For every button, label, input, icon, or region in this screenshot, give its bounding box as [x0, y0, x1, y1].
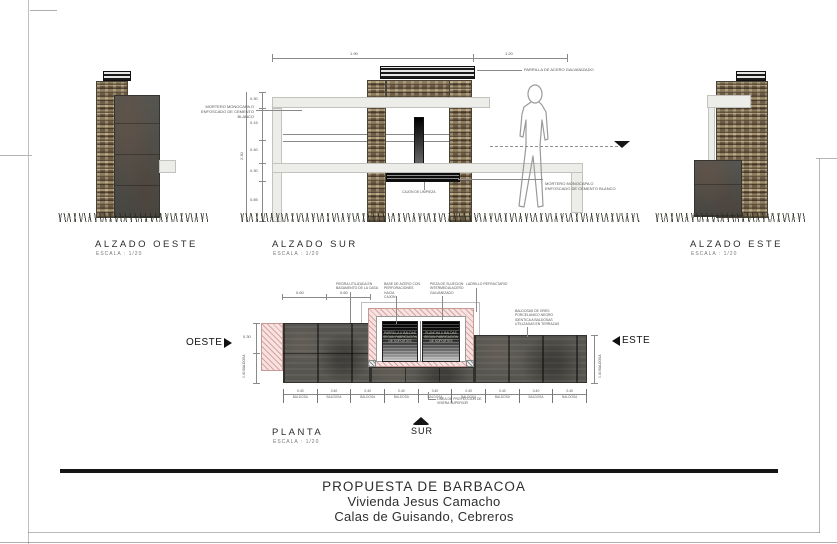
- planta-grill-right: PLANCHA U BALDAS SEGUN FABRICACION DE SO…: [422, 321, 460, 362]
- planta-right-dim-line: [594, 335, 595, 383]
- title-block-rule: [60, 469, 778, 473]
- sur-dim-tick: [259, 163, 266, 164]
- plan-dim-segment: 0.40BALDOSA: [519, 389, 553, 403]
- sur-top-dim-value: 1.90: [350, 51, 358, 56]
- project-title: PROPUESTA DE BARBACOA: [28, 479, 820, 494]
- human-figure: [510, 84, 560, 212]
- sur-dim-value: 0.30: [250, 96, 258, 101]
- sur-level-dashed-line: [490, 146, 618, 147]
- compass-este-label: ESTE: [622, 335, 650, 346]
- planta-tile-joint: [542, 335, 543, 383]
- planta-left-dim-tick: [253, 323, 260, 324]
- planta-note-ladrillo: LADRILLO REFRACTARIO: [466, 282, 510, 286]
- planta-top-dim-tick: [370, 294, 371, 300]
- planta-note-leader: [396, 296, 397, 324]
- oeste-grass: [58, 213, 208, 222]
- sur-dim-tick: [259, 108, 266, 109]
- sur-top-dim-tick: [272, 54, 273, 62]
- planta-left-dim-tick: [253, 353, 260, 354]
- sur-note-leader: [256, 110, 302, 111]
- frame-right-line: [819, 158, 820, 533]
- sur-grill-plate: [414, 117, 424, 164]
- oeste-view-scale: ESCALA : 1/20: [96, 251, 142, 257]
- sur-note-mortero-left: MORTERO MONOCAPA O ENFOSCADO DE CEMENTO …: [190, 104, 254, 120]
- oeste-shelf: [159, 160, 176, 173]
- sur-cleaning-drawer: [386, 172, 460, 182]
- grill-right-label: PLANCHA U BALDAS SEGUN FABRICACION DE SO…: [423, 331, 459, 343]
- planta-note-leader: [476, 288, 477, 312]
- planta-corner-hatch: [368, 360, 376, 367]
- image-bottom-edge: [0, 542, 837, 543]
- oeste-view-title: ALZADO OESTE: [95, 239, 198, 250]
- planta-view-scale: ESCALA : 1/20: [273, 439, 319, 445]
- sur-dim-tick: [259, 181, 266, 182]
- sur-rail-line: [283, 134, 367, 135]
- frame-left-cutmark: [0, 155, 32, 156]
- planta-note-baldosas: BALDOSAS DE GRES PORCELANICO NEGRO IDENT…: [515, 309, 567, 327]
- planta-note-leader: [442, 296, 443, 320]
- planta-tile-joint: [283, 353, 370, 354]
- planta-top-dim-tick: [282, 294, 283, 300]
- project-client: Vivienda Jesus Camacho: [28, 494, 820, 509]
- sur-view-scale: ESCALA : 1/20: [273, 251, 319, 257]
- planta-grill-divider: [420, 321, 421, 362]
- planta-left-dim-rotated: 0.40 BALDOSA: [242, 354, 246, 378]
- sur-view-title: ALZADO SUR: [272, 239, 358, 250]
- oeste-chimney-cap: [103, 71, 131, 81]
- sur-dim-value: 0.15: [250, 120, 258, 125]
- sur-grass: [240, 213, 640, 222]
- arrow-right-icon: [224, 338, 232, 348]
- sur-top-slab: [272, 97, 490, 108]
- sur-note-leader: [477, 70, 522, 71]
- sur-top-dim-tick: [473, 54, 474, 62]
- level-marker-icon: [614, 141, 630, 148]
- planta-note-leader: [428, 399, 436, 400]
- grill-left-label: PARRILLA U BALDAS SEGUN FABRICACION DE S…: [383, 331, 417, 343]
- este-view-title: ALZADO ESTE: [690, 239, 783, 250]
- planta-grill-left: PARRILLA U BALDAS SEGUN FABRICACION DE S…: [382, 321, 418, 362]
- planta-west-wall: [261, 323, 283, 371]
- sur-total-dim-value: 2.30: [239, 152, 244, 160]
- sur-top-dim-line: [272, 58, 568, 59]
- sur-top-dim-value: 1.20: [505, 51, 513, 56]
- planta-note-leader: [428, 392, 429, 400]
- plan-dim-segment: 0.40BALDOSA: [384, 389, 418, 403]
- planta-left-dim-value: 0.30: [243, 334, 251, 339]
- plan-dim-segment: 0.40BALDOSA: [283, 389, 317, 403]
- sur-note-leader: [458, 179, 543, 180]
- sur-rail-line: [283, 141, 367, 142]
- plan-dim-segment: 0.40BALDOSA: [350, 389, 384, 403]
- plan-dim-segment: 0.40BALDOSA: [317, 389, 351, 403]
- sur-dim-value: 0.85: [250, 197, 258, 202]
- planta-note-piedra: PIEDRA UTILIZADA EN BASAMENTO DE LA CASA: [336, 282, 380, 291]
- sur-note-leader: [424, 182, 425, 190]
- sur-dim-tick: [259, 140, 266, 141]
- planta-right-dim-tick: [591, 383, 598, 384]
- sur-dim-tick: [259, 92, 266, 93]
- planta-tile-joint: [576, 335, 577, 383]
- planta-counter-right: [474, 335, 587, 383]
- planta-right-dim-tick: [591, 335, 598, 336]
- este-concrete-block: [694, 160, 742, 217]
- arrow-left-icon: [612, 336, 620, 346]
- este-post: [708, 107, 715, 161]
- planta-note-leader: [527, 327, 528, 337]
- este-view-scale: ESCALA : 1/20: [691, 251, 737, 257]
- compass-oeste: OESTE: [186, 337, 232, 348]
- drawing-sheet: ALZADO OESTE ESCALA : 1/20 1.90 1.20 2.3…: [0, 0, 837, 544]
- planta-left-dim-tick: [253, 383, 260, 384]
- title-block: PROPUESTA DE BARBACOA Vivienda Jesus Cam…: [28, 479, 820, 524]
- sur-stone-band: [386, 80, 450, 98]
- arrow-up-icon: [412, 417, 430, 425]
- sur-note-parrilla: PARRILLA DE ACERO GALVANIZADO: [524, 67, 634, 72]
- frame-right-cutmark: [816, 158, 837, 159]
- planta-note-leader: [350, 292, 351, 323]
- planta-note-base: BASE DE ACERO CON PERFORACIONES HACIA CA…: [384, 282, 424, 300]
- este-chimney-cap: [736, 71, 766, 81]
- compass-este: ESTE: [612, 335, 650, 346]
- planta-corner-hatch: [466, 360, 474, 367]
- planta-top-dim-value: 0.60: [296, 290, 304, 295]
- planta-counter-center: [370, 367, 474, 383]
- sur-note-cajon: CAJON DE LIMPIEZA: [402, 190, 452, 194]
- frame-left-line: [28, 0, 29, 544]
- este-grass: [655, 213, 805, 222]
- planta-tile-joint: [508, 335, 509, 383]
- planta-note-pieza: PIEZA DE SUJECION INTERMEDIA ACERO GALVA…: [430, 282, 470, 295]
- planta-tile-dim-chain: 0.40BALDOSA 0.40BALDOSA 0.40BALDOSA 0.40…: [283, 389, 587, 403]
- compass-sur-label: SUR: [410, 426, 434, 436]
- sur-dim-chain-line: [262, 92, 263, 222]
- sur-dim-value: 0.30: [250, 168, 258, 173]
- frame-topleft-tick: [30, 10, 57, 11]
- planta-right-dim-rotated: 0.40 BALDOSA: [598, 354, 602, 378]
- sur-steel-grille-cap: [380, 66, 475, 79]
- sur-note-mortero-right: MORTERO MONOCAPA O ENFOSCADO DE CEMENTO …: [545, 181, 645, 191]
- project-location: Calas de Guisando, Cebreros: [28, 509, 820, 524]
- planta-top-dim-tick: [326, 294, 327, 300]
- sheet-bottom-line: [28, 532, 820, 533]
- sur-dim-value: 0.40: [250, 147, 258, 152]
- sur-right-leg: [571, 172, 583, 213]
- oeste-concrete-body: [114, 95, 160, 218]
- plan-dim-segment: 0.40BALDOSA: [552, 389, 586, 403]
- compass-oeste-label: OESTE: [186, 337, 222, 348]
- sur-top-dim-tick: [567, 54, 568, 62]
- planta-view-title: PLANTA: [272, 427, 323, 438]
- planta-note-linea: LINEA DE PROYECCION DE VISERA SUPERIOR: [437, 397, 499, 406]
